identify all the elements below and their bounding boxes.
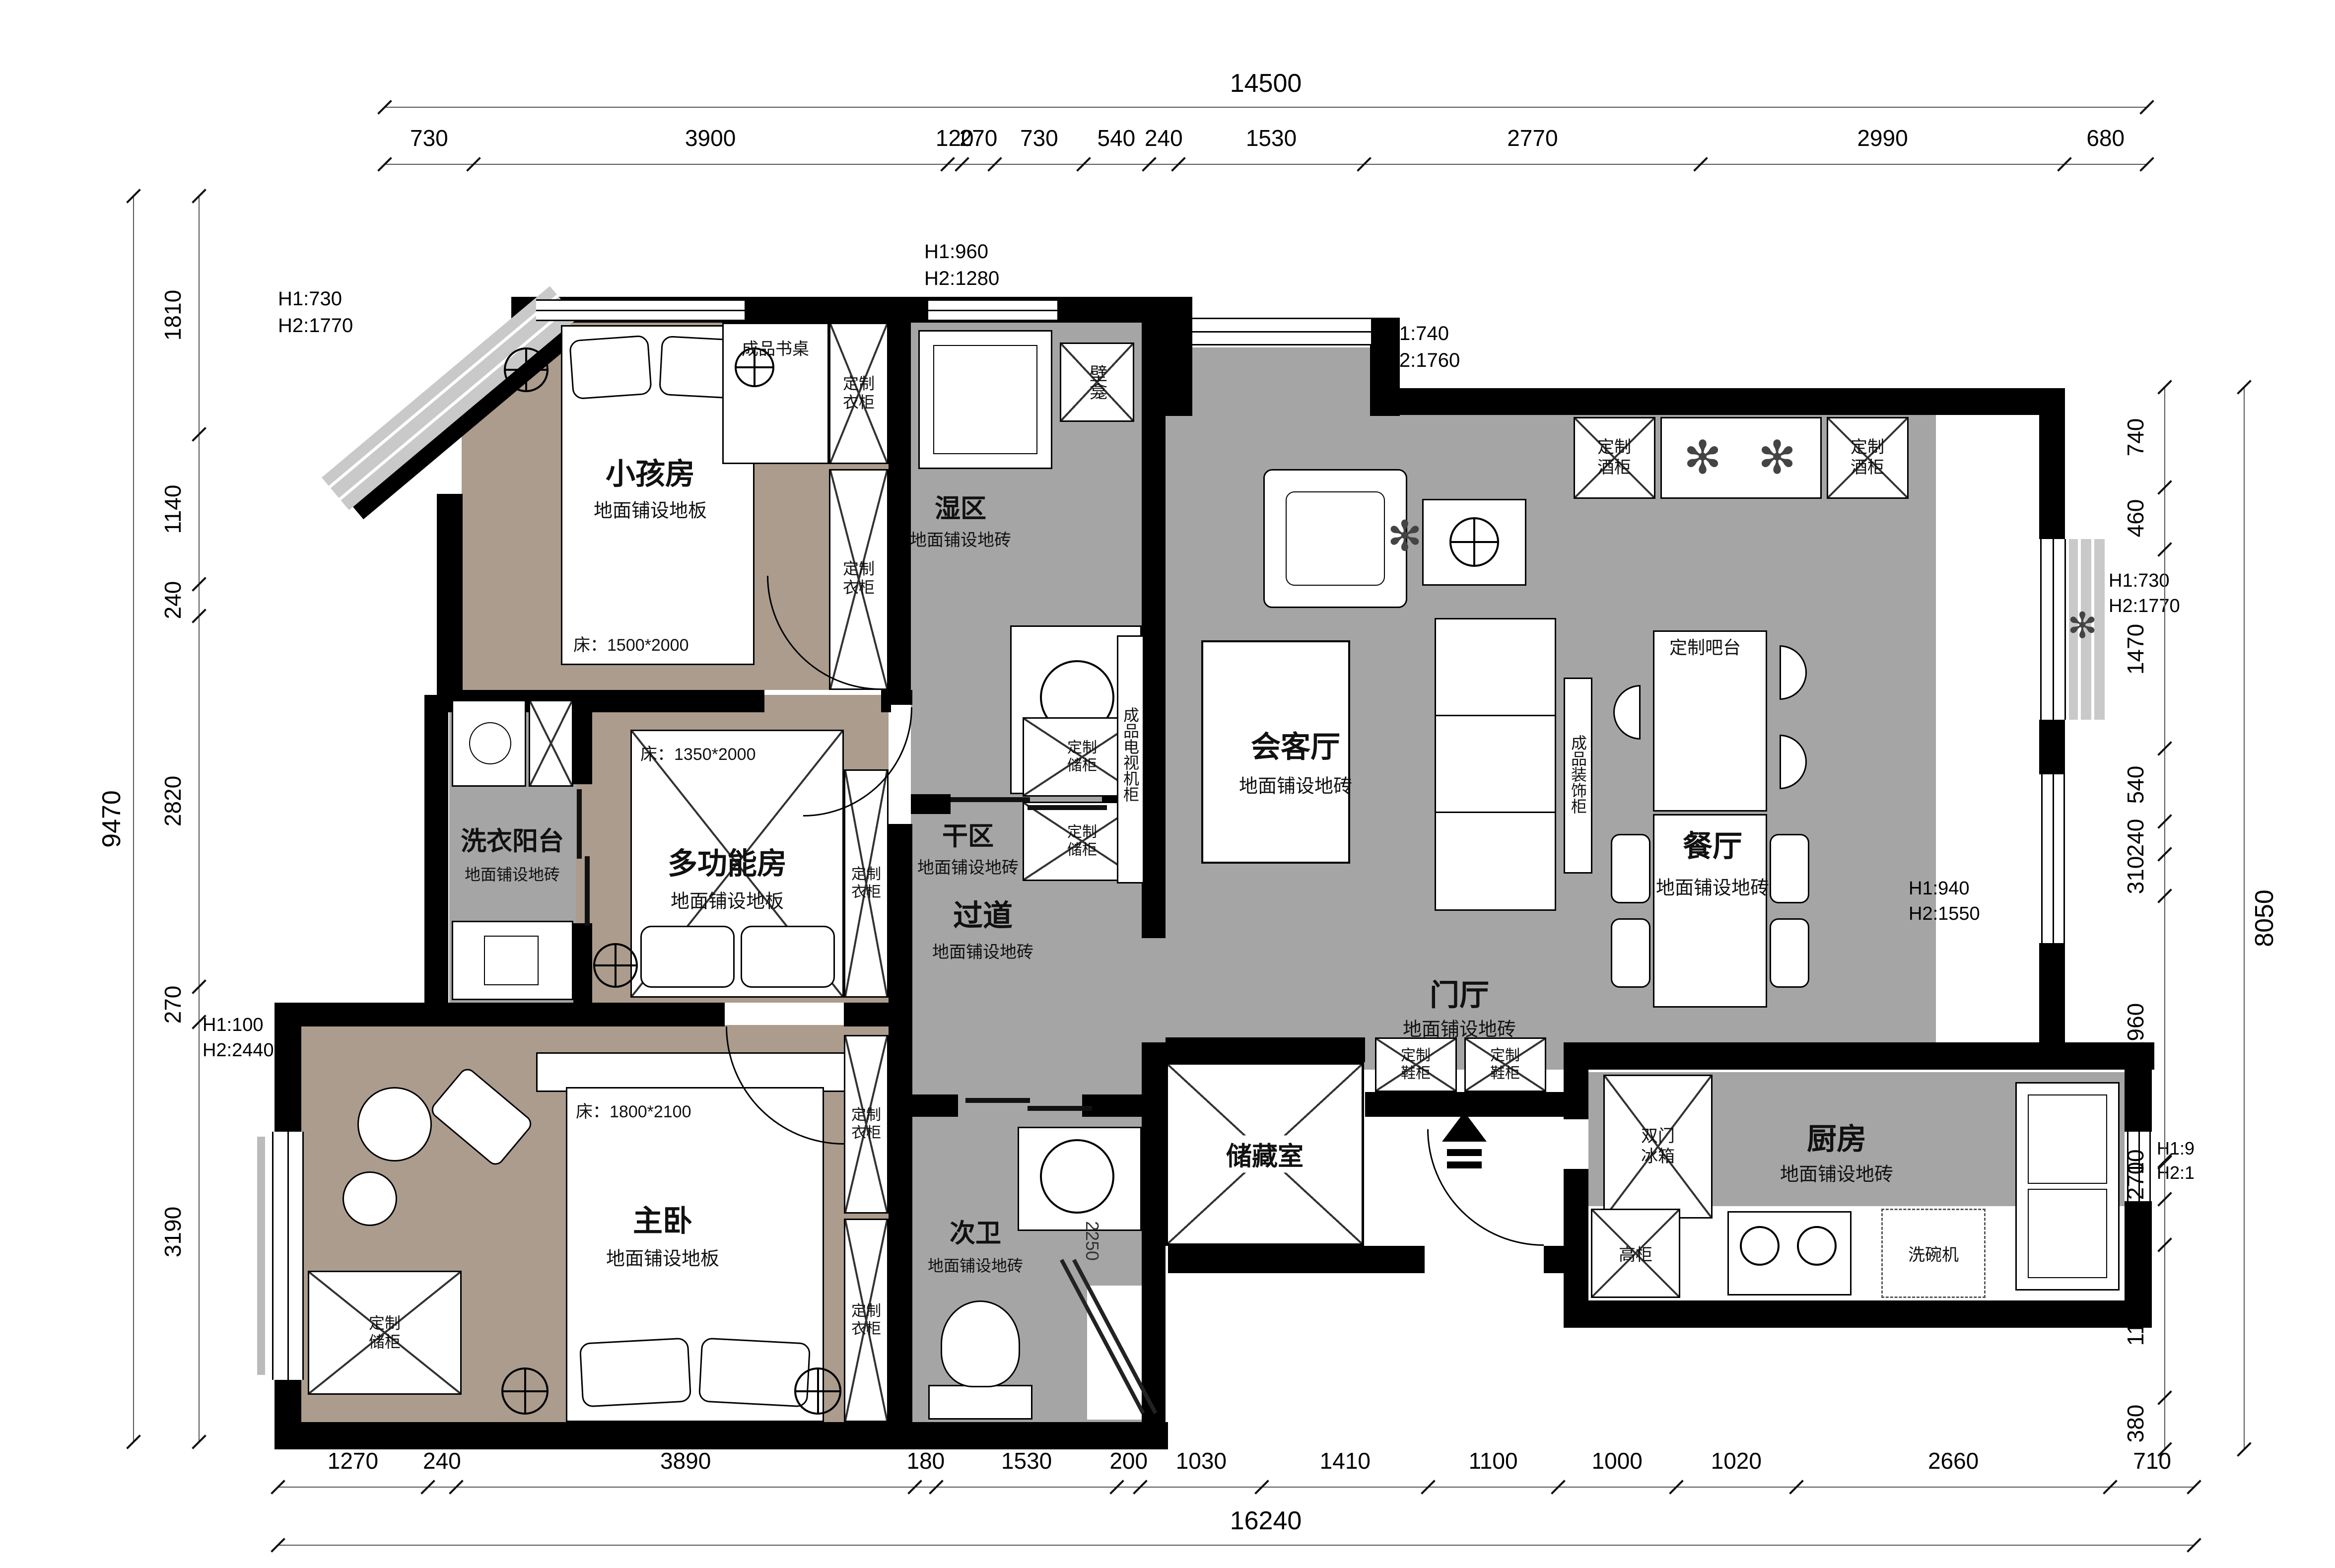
room-floor-bath2: 地面铺设地砖: [928, 1253, 1023, 1276]
dim-label: 270: [960, 125, 998, 151]
wall-top-right: [1400, 388, 2065, 415]
sliding-door-bath: [951, 797, 1030, 802]
window-height-note: H1:100H2:2440: [203, 1013, 274, 1064]
wardrobe-label: 定制衣柜: [848, 866, 885, 901]
room-label-corridor: 过道: [953, 892, 1013, 935]
dim-total-top: 14500: [1230, 68, 1302, 98]
room-floor-corridor: 地面铺设地砖: [932, 939, 1033, 963]
window-height-note: H1:940H2:1550: [1909, 876, 1980, 927]
kitchen-sink-cabinet-door: [2028, 1094, 2107, 1184]
dim-label: 3890: [660, 1447, 711, 1474]
dim-label: 1140: [159, 484, 186, 534]
room-label-multi: 多功能房: [668, 840, 787, 883]
dim-total-bottom: 16240: [1230, 1506, 1302, 1536]
wardrobe-label: 定制衣柜: [848, 1106, 885, 1142]
plant-icon: ✻: [1683, 431, 1721, 484]
laundry-cabinet: [529, 700, 573, 787]
ac-vent-icon: [504, 347, 549, 392]
wall-foyer-bottom-b: [1544, 1246, 1566, 1273]
dim-label: 310: [2122, 856, 2149, 894]
wall-multi-right-b: [889, 824, 912, 1025]
dim-label: 240: [159, 581, 186, 619]
wall-bottom-left: [275, 1422, 1168, 1449]
wall-foyer-kitchen-a: [1564, 1070, 1588, 1119]
plant-icon: ✻: [2067, 605, 2097, 646]
bath2-width-dim: 2250: [1082, 1221, 1102, 1261]
toilet-bowl: [941, 1300, 1020, 1387]
dim-label: 3900: [685, 125, 736, 151]
burner-icon: [1740, 1226, 1780, 1266]
sliding-door-bath: [1028, 805, 1107, 810]
dim-label: 540: [1097, 125, 1135, 151]
dim-label: 1530: [1001, 1447, 1052, 1474]
dim-label: 380: [2122, 1405, 2149, 1443]
dim-line-total: [278, 1545, 2194, 1546]
wall-laundry-divider-b: [573, 923, 592, 1003]
room-floor-dining: 地面铺设地砖: [1656, 873, 1769, 900]
bed-size-multi: 床：1350*2000: [640, 741, 756, 765]
dim-line-total: [2244, 387, 2245, 1449]
room-label-bath2: 次卫: [950, 1213, 1001, 1250]
wall-bath2-top-a: [889, 1094, 958, 1117]
room-floor-wet: 地面铺设地砖: [910, 527, 1011, 551]
room-floor-foyer: 地面铺设地砖: [1403, 1014, 1516, 1041]
dim-line-total: [385, 107, 2147, 108]
room-floor-dry: 地面铺设地砖: [917, 854, 1019, 879]
bed-size-master: 床：1800*2100: [576, 1098, 691, 1122]
side-table: [343, 1171, 397, 1226]
shoe-cabinet-label: 定制鞋柜: [1487, 1047, 1523, 1083]
pillar-balcony-left: [1162, 297, 1192, 416]
dim-label: 460: [2122, 499, 2149, 538]
window-height-note: H1:9H2:1: [2157, 1137, 2195, 1185]
sliding-door-laundry: [577, 789, 582, 859]
wardrobe-label: 定制衣柜: [840, 559, 877, 598]
window-height-note: H1:740H2:1760: [1385, 320, 1460, 374]
room-label-wet: 湿区: [935, 488, 986, 525]
washing-machine-drum: [469, 722, 511, 764]
window-children-top: [536, 299, 745, 321]
dim-label: 1130: [2122, 1297, 2149, 1346]
ac-vent-icon: [501, 1367, 549, 1415]
wall-multi-right-a: [889, 690, 912, 705]
window-master-bay: [272, 1132, 304, 1380]
fridge-label: 双门冰箱: [1640, 1126, 1676, 1167]
wall-laundry-divider-a: [573, 695, 592, 784]
room-label-living: 会客厅: [1251, 723, 1340, 766]
pillow: [741, 926, 835, 988]
dim-label: 1030: [1176, 1447, 1227, 1474]
dim-label: 1530: [1246, 125, 1297, 151]
wall-left-upper: [437, 494, 463, 700]
room-floor-master: 地面铺设地板: [606, 1243, 719, 1271]
room-floor-children: 地面铺设地板: [594, 495, 707, 523]
dim-label: 1410: [1320, 1447, 1371, 1474]
pillow: [569, 335, 652, 400]
plant-icon: ✻: [1758, 431, 1796, 484]
laundry-sink: [484, 936, 539, 985]
toilet-tank: [928, 1385, 1032, 1420]
window-height-note: H1:730H2:1770: [278, 285, 353, 339]
room-label-laundry: 洗衣阳台: [461, 820, 564, 858]
wall-right-upper-b: [2039, 720, 2065, 774]
dining-chair: [1611, 834, 1650, 903]
kitchen-sink-cabinet-door: [2028, 1189, 2107, 1278]
sofa-seat-line: [1435, 812, 1556, 813]
lounge-chair: [357, 1087, 432, 1161]
armchair-living-inner: [1286, 491, 1385, 586]
fan-icon: [1449, 517, 1499, 567]
tall-cabinet-label: 高柜: [1619, 1241, 1652, 1266]
room-label-storage: 储藏室: [1222, 1136, 1307, 1173]
dim-label: 2990: [1857, 125, 1908, 151]
pillow: [640, 926, 735, 988]
floor-plan: ✻ ✻ ✻ ✻: [0, 0, 2335, 1568]
shoe-cabinet-label: 定制鞋柜: [1397, 1047, 1434, 1083]
wall-foyer-kitchen-b: [1564, 1169, 1588, 1300]
dim-label: 730: [1020, 125, 1058, 151]
wall-kitchen-bottom: [1564, 1300, 2152, 1328]
wall-foyer-bottom-a: [1168, 1246, 1425, 1273]
dim-label: 270: [159, 985, 186, 1023]
dining-chair: [1770, 834, 1809, 903]
room-label-kitchen: 厨房: [1807, 1115, 1866, 1159]
dim-label: 1470: [2122, 623, 2149, 674]
window-height-note: H1:730H2:1770: [2109, 568, 2180, 619]
room-floor-kitchen: 地面铺设地砖: [1780, 1159, 1893, 1186]
bay-sill-master: [257, 1137, 265, 1375]
dishwasher-label: 洗碗机: [1908, 1241, 1959, 1266]
store-cabinet-label: 定制储柜: [366, 1314, 403, 1352]
plant-icon: ✻: [1387, 512, 1422, 560]
room-label-dining: 餐厅: [1683, 822, 1742, 866]
room-label-dry: 干区: [942, 816, 994, 853]
window-dining-bay-inner: [2040, 539, 2066, 720]
dim-total-left: 9470: [97, 790, 127, 848]
sliding-door-bath2: [1028, 1106, 1092, 1111]
room-floor-living: 地面铺设地砖: [1239, 771, 1352, 798]
dim-total-right: 8050: [2250, 889, 2279, 947]
window-dining-lower: [2041, 774, 2065, 943]
dim-label: 2770: [1507, 125, 1558, 151]
dim-label: 2660: [1928, 1447, 1979, 1474]
window-wet-top: [928, 299, 1057, 321]
bar-label: 定制吧台: [1669, 633, 1741, 659]
wall-right-upper-c: [2039, 943, 2065, 1042]
dim-line: [385, 164, 2147, 165]
room-floor-laundry: 地面铺设地砖: [465, 862, 560, 885]
dim-label: 540: [2122, 766, 2149, 804]
burner-icon: [1797, 1226, 1837, 1266]
store-cabinet-label: 定制储柜: [1064, 823, 1100, 859]
tv-cabinet-label: 成品电视机柜: [1119, 707, 1142, 802]
dim-label: 730: [410, 125, 448, 151]
dim-label: 270: [2122, 1161, 2149, 1200]
dim-label: 1000: [1592, 1447, 1643, 1474]
dim-label: 240: [2122, 818, 2149, 857]
store-cabinet-label: 定制储柜: [1064, 739, 1100, 775]
wall-laundry-left: [424, 695, 448, 1015]
floor-living-balcony-strip: [1164, 347, 1370, 414]
wall-storage-top: [1166, 1037, 1365, 1062]
pillow: [698, 1337, 811, 1407]
dim-label: 3190: [159, 1207, 186, 1257]
dim-label: 1270: [328, 1447, 378, 1474]
wardrobe-label: 定制衣柜: [840, 374, 877, 412]
pillow: [579, 1337, 692, 1407]
room-label-master: 主卧: [633, 1197, 692, 1240]
dim-label: 200: [1109, 1447, 1148, 1474]
dim-label: 2820: [159, 776, 186, 826]
dim-label: 1100: [1469, 1447, 1518, 1474]
dining-chair: [1611, 918, 1650, 988]
room-label-children: 小孩房: [606, 450, 695, 493]
ac-vent-icon: [794, 1367, 841, 1415]
wine-cabinet-label: 定制酒柜: [1849, 437, 1886, 478]
dim-label: 1810: [159, 290, 186, 341]
sofa: [1435, 618, 1556, 911]
deco-cabinet-label: 成品装饰柜: [1567, 735, 1589, 814]
wall-master-right: [889, 1003, 912, 1425]
dim-label: 340: [2122, 1203, 2149, 1241]
bathtub-inner: [933, 345, 1037, 454]
niche-label: 壁龛: [1084, 364, 1110, 400]
basin-bath2: [1040, 1139, 1114, 1214]
window-height-note: H1:960H2:1280: [924, 238, 999, 292]
wall-kitchen-right-a: [2125, 1070, 2152, 1132]
sliding-door-bath2: [965, 1098, 1030, 1103]
sliding-door-laundry: [585, 856, 590, 926]
wine-cabinet-label: 定制酒柜: [1596, 437, 1633, 478]
wardrobe-label: 定制衣柜: [848, 1302, 885, 1338]
dim-label: 240: [1145, 125, 1183, 151]
bed-size-children: 床：1500*2000: [573, 631, 689, 656]
dim-line: [278, 1487, 2194, 1488]
dim-label: 680: [2086, 125, 2125, 151]
dim-line: [199, 196, 200, 1442]
dining-chair: [1770, 918, 1809, 988]
dim-label: 740: [2122, 418, 2149, 456]
room-label-foyer: 门厅: [1430, 971, 1489, 1015]
wall-kitchen-top: [1564, 1042, 2154, 1070]
ac-vent-icon: [593, 943, 638, 988]
window-living-balcony: [1192, 318, 1371, 345]
dim-line-total: [133, 196, 134, 1442]
dim-label: 180: [907, 1447, 945, 1474]
dim-line: [2164, 387, 2165, 1449]
dim-label: 1020: [1711, 1447, 1762, 1474]
wall-bath2-top-b: [1082, 1094, 1167, 1117]
door-arc-multi: [803, 707, 912, 817]
dim-label: 240: [423, 1447, 461, 1474]
wall-children-right: [889, 297, 911, 690]
desk-label: 成品书桌: [742, 336, 809, 360]
wall-bath-bottom-a: [911, 794, 951, 814]
sofa-seat-line: [1435, 715, 1556, 716]
room-floor-multi: 地面铺设地板: [671, 886, 784, 913]
wall-right-upper-a: [2039, 415, 2065, 539]
wall-master-top-a: [275, 1003, 725, 1026]
dim-label: 710: [2133, 1447, 2171, 1474]
dim-label: 1960: [2122, 1003, 2149, 1054]
